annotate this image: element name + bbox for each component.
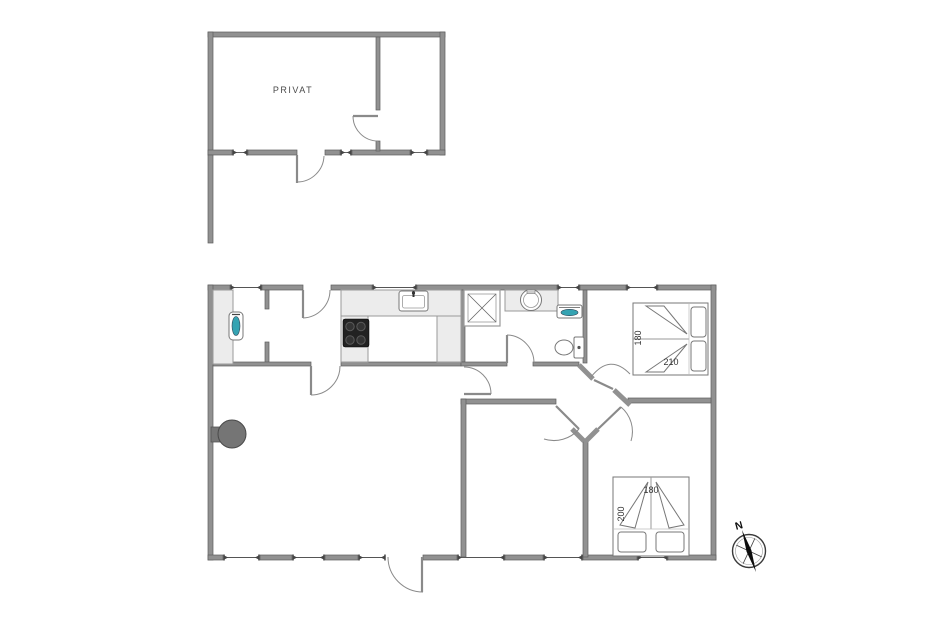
compass-needle xyxy=(742,530,756,572)
bed-se-length-label: 200 xyxy=(616,506,626,521)
compass-rose: N xyxy=(733,519,766,572)
washing-machine xyxy=(557,305,582,318)
bed-ne-length-label: 210 xyxy=(663,357,678,367)
toilet xyxy=(555,337,584,358)
boundary-wall-stub xyxy=(208,155,213,243)
kitchen-sink xyxy=(399,291,428,311)
bedroom-northeast: 180 210 xyxy=(633,303,708,375)
utility-sink-basin xyxy=(232,317,240,336)
living-room xyxy=(211,420,246,448)
annex-exterior-door xyxy=(297,155,324,183)
annex-building: PRIVAT xyxy=(208,32,445,183)
pillow xyxy=(691,307,706,337)
cooktop xyxy=(343,319,369,347)
terrace-door xyxy=(388,557,423,592)
utility-sink xyxy=(229,312,243,340)
floor-plan-drawing: PRIVAT xyxy=(0,0,930,620)
pillow xyxy=(656,532,684,552)
bed-se-width-label: 180 xyxy=(643,485,658,495)
washing-machine-door xyxy=(561,309,578,315)
double-bed-southeast: 180 200 xyxy=(613,477,689,556)
annex-interior-door xyxy=(353,116,378,141)
main-house: 180 210 180 200 xyxy=(208,285,716,592)
washbasin xyxy=(505,290,558,312)
kitchen xyxy=(341,290,461,362)
shower xyxy=(464,290,500,326)
pillow xyxy=(691,341,706,371)
annex-walls xyxy=(208,32,445,155)
corridor-door xyxy=(464,367,491,394)
bed-ne-width-label: 180 xyxy=(633,330,643,345)
bedroom-se-door xyxy=(598,407,632,441)
bedroom-ne-door xyxy=(591,364,630,389)
utility-room xyxy=(213,290,243,364)
privat-room-label: PRIVAT xyxy=(273,85,313,95)
bathroom-door xyxy=(507,335,534,363)
double-bed-northeast: 180 210 xyxy=(633,303,708,375)
bedroom-southeast: 180 200 xyxy=(613,477,689,556)
compass-north-label: N xyxy=(734,519,744,533)
bathroom xyxy=(464,290,584,359)
wood-stove xyxy=(211,420,246,448)
entrance-door xyxy=(303,290,330,318)
floor-plan-page: PRIVAT xyxy=(0,0,930,620)
bedroom-mid-door xyxy=(544,406,579,441)
pillow xyxy=(618,532,646,552)
utility-living-door xyxy=(311,366,340,395)
